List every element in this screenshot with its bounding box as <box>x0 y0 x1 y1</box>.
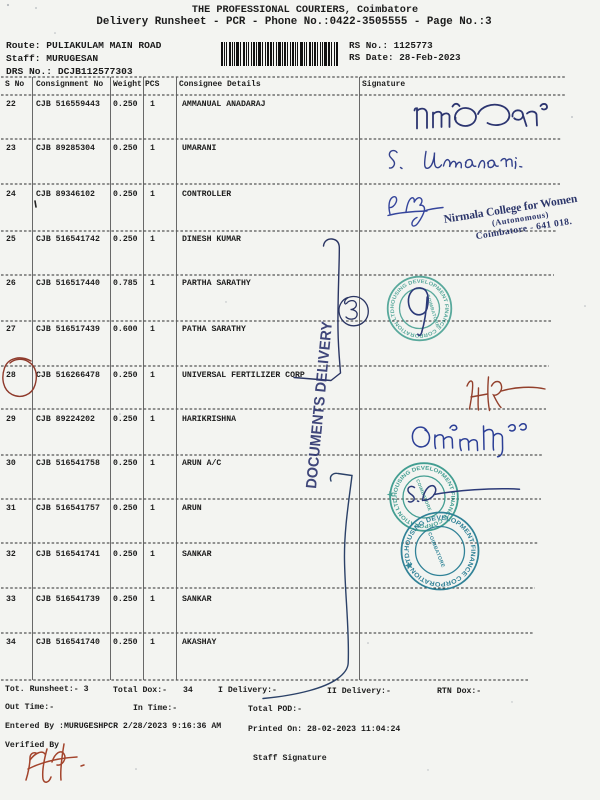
svg-text:COIMBATORE: COIMBATORE <box>426 532 446 569</box>
svg-text:DOCUMENTS DELIVERY: DOCUMENTS DELIVERY <box>303 321 336 490</box>
